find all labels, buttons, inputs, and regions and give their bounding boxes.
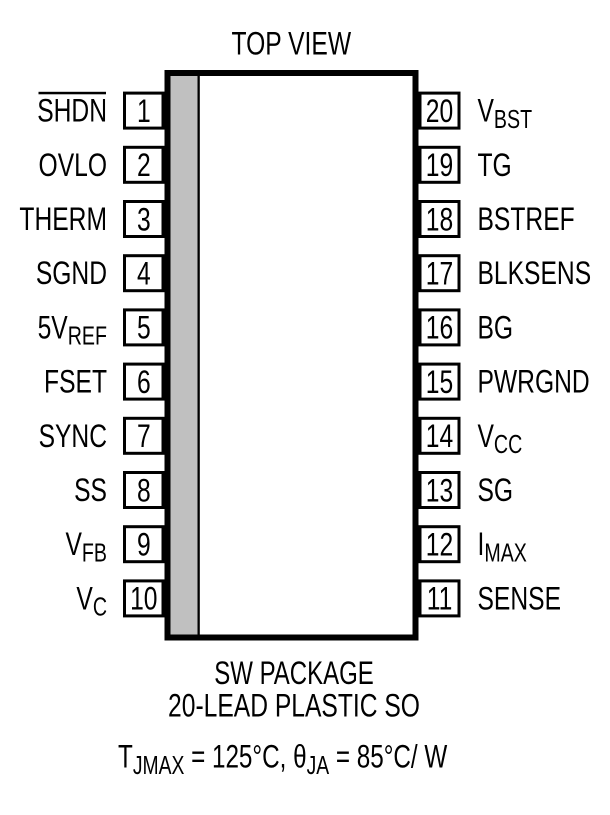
svg-text:10: 10 (130, 582, 157, 618)
svg-text:6: 6 (137, 365, 151, 401)
svg-text:9: 9 (137, 527, 151, 563)
svg-text:SGND: SGND (36, 256, 107, 292)
svg-text:19: 19 (426, 148, 453, 184)
svg-text:11: 11 (427, 582, 453, 618)
svg-text:OVLO: OVLO (39, 148, 107, 184)
svg-text:BLKSENS: BLKSENS (478, 256, 592, 292)
svg-text:4: 4 (137, 256, 151, 292)
svg-text:TOP VIEW: TOP VIEW (232, 26, 352, 62)
svg-text:BSTREF: BSTREF (478, 202, 575, 238)
svg-text:THERM: THERM (19, 202, 107, 238)
svg-text:SS: SS (74, 473, 107, 509)
svg-text:16: 16 (426, 311, 453, 347)
svg-text:20: 20 (426, 94, 453, 130)
svg-text:SG: SG (478, 473, 514, 509)
svg-text:SENSE: SENSE (478, 581, 562, 617)
svg-text:18: 18 (426, 202, 453, 238)
svg-text:7: 7 (137, 419, 151, 455)
svg-text:12: 12 (426, 527, 453, 563)
svg-text:PWRGND: PWRGND (478, 365, 590, 401)
svg-text:SYNC: SYNC (39, 419, 107, 455)
svg-text:1: 1 (137, 94, 151, 130)
svg-text:8: 8 (137, 473, 151, 509)
svg-text:SW PACKAGE: SW PACKAGE (214, 655, 373, 691)
svg-text:FSET: FSET (44, 365, 107, 401)
svg-text:2: 2 (137, 148, 151, 184)
svg-text:15: 15 (426, 365, 453, 401)
svg-text:14: 14 (426, 419, 454, 455)
svg-text:13: 13 (426, 473, 453, 509)
svg-text:TG: TG (478, 148, 512, 184)
svg-text:SHDN: SHDN (37, 94, 107, 130)
svg-text:BG: BG (478, 310, 514, 346)
svg-text:17: 17 (426, 256, 453, 292)
svg-text:3: 3 (137, 202, 151, 238)
svg-text:20-LEAD PLASTIC SO: 20-LEAD PLASTIC SO (168, 688, 420, 724)
svg-text:5: 5 (137, 311, 151, 347)
